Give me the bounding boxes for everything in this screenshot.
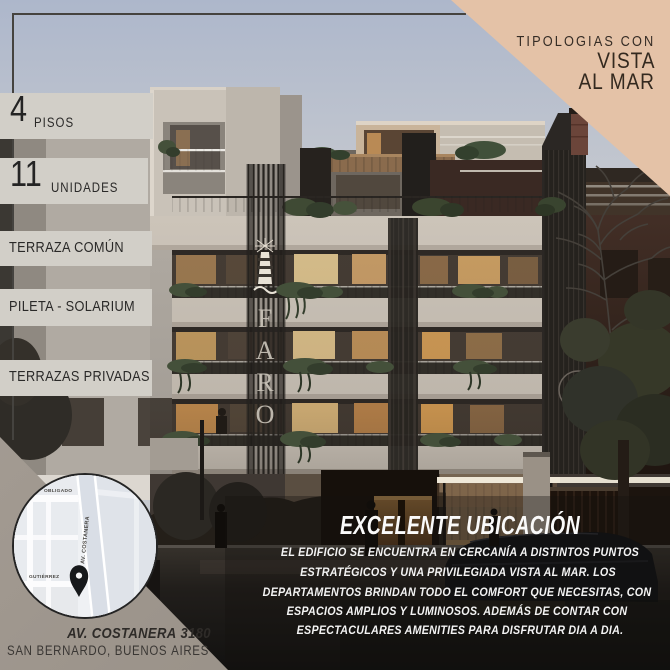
svg-text:OBLIGADO: OBLIGADO (44, 488, 72, 494)
svg-text:R: R (256, 368, 274, 397)
svg-text:O: O (256, 400, 275, 429)
svg-text:A: A (256, 336, 275, 365)
svg-text:F: F (258, 304, 272, 333)
